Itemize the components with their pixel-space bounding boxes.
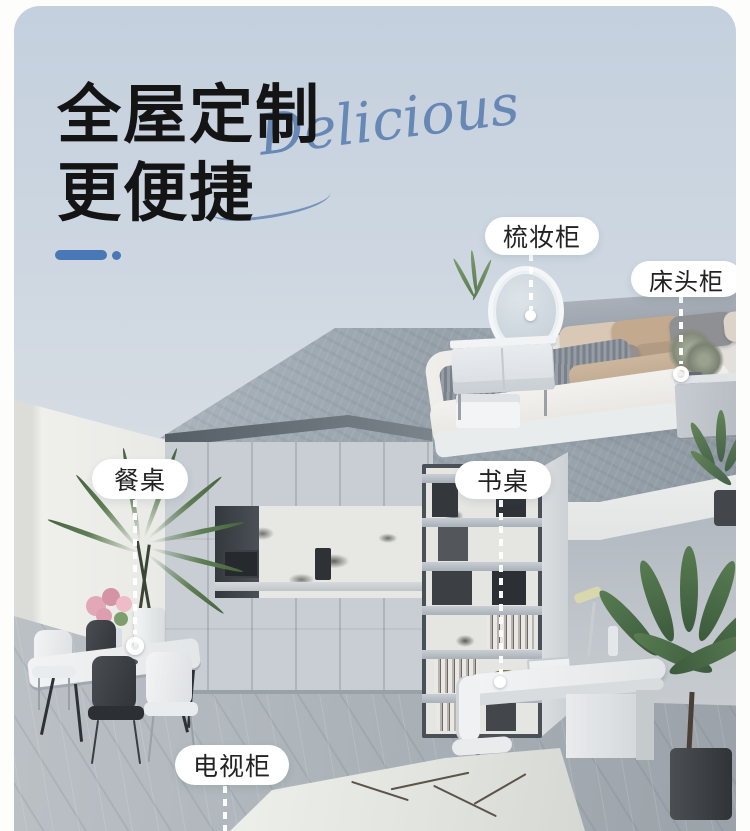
dining-chair-white — [146, 652, 192, 706]
desk-chair — [456, 676, 480, 742]
plant-leaf — [716, 410, 726, 462]
dining-chair-dark — [92, 656, 136, 710]
potted-plant — [692, 402, 736, 528]
callout-bedside-cabinet: 床头柜 — [631, 261, 736, 297]
chair-leg — [148, 716, 155, 762]
table-leg — [74, 684, 83, 742]
storage-box — [438, 527, 468, 561]
plant-trunk — [686, 692, 694, 752]
callout-dot-dressing-cabinet — [525, 310, 536, 321]
callout-line-desk — [499, 500, 503, 674]
chair-seat — [144, 702, 198, 716]
accent-dash — [55, 250, 107, 260]
callout-dot-bedside-cabinet — [673, 366, 689, 382]
callout-dining-table: 餐桌 — [92, 459, 188, 499]
chair-leg — [133, 720, 141, 764]
pink-flowers — [116, 596, 132, 612]
desk-lamp — [587, 602, 596, 656]
dresser-leg — [544, 390, 547, 416]
callout-line-bedside-cabinet — [679, 296, 683, 364]
dresser-leg — [458, 394, 461, 420]
shelf-board — [422, 562, 542, 571]
accent-dot — [112, 251, 121, 260]
coffee-maker — [315, 548, 331, 580]
room-scene: Delicious 全屋定制 更便捷 — [14, 6, 736, 831]
chair-leg — [68, 678, 70, 710]
shelf-board — [422, 518, 542, 527]
storage-box — [432, 483, 458, 517]
callout-desk: 书桌 — [455, 461, 551, 499]
plant-pot — [670, 748, 732, 820]
headline-line1: 全屋定制 — [57, 76, 321, 154]
chair-seat — [32, 666, 76, 678]
callout-dressing-cabinet: 梳妆柜 — [485, 217, 599, 255]
callout-line-tv-cabinet — [223, 786, 227, 831]
dressing-table — [448, 250, 560, 432]
headline: 全屋定制 更便捷 — [57, 76, 321, 232]
callout-line-dressing-cabinet — [529, 254, 533, 310]
chair-leg — [91, 720, 99, 764]
chair-leg — [38, 678, 40, 710]
promo-poster: Delicious 全屋定制 更便捷 — [0, 0, 750, 831]
flower-leaves — [114, 612, 128, 626]
floor-plant — [600, 540, 736, 831]
plant-leaf — [680, 546, 698, 632]
callout-dot-desk — [494, 676, 506, 688]
plant-pot — [714, 490, 736, 526]
dresser-lower-cabinet — [456, 394, 520, 428]
chair-seat — [88, 706, 144, 720]
poster-card: Delicious 全屋定制 更便捷 — [14, 6, 736, 831]
callout-tv-cabinet: 电视柜 — [175, 745, 289, 785]
headline-line2: 更便捷 — [57, 154, 321, 232]
callout-line-dining-table — [133, 500, 137, 634]
callout-dot-dining-table — [126, 637, 144, 655]
